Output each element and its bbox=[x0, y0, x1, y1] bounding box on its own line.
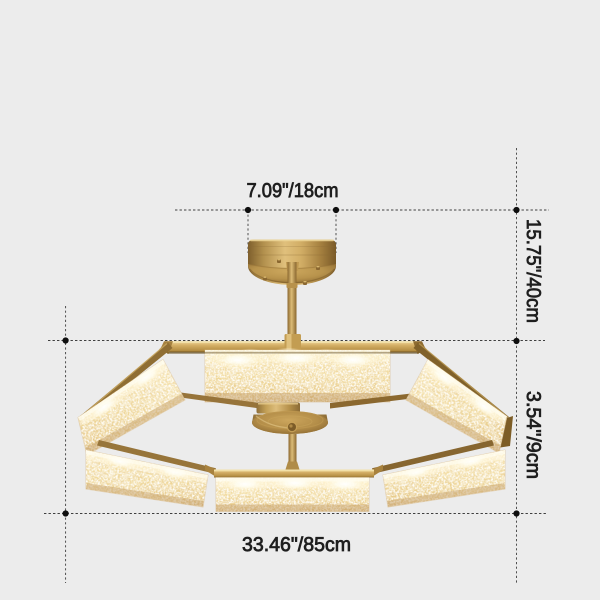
svg-text:15.75"/40cm: 15.75"/40cm bbox=[522, 219, 544, 323]
svg-text:33.46"/85cm: 33.46"/85cm bbox=[242, 534, 351, 556]
svg-text:3.54"/9cm: 3.54"/9cm bbox=[522, 391, 544, 479]
svg-text:7.09"/18cm: 7.09"/18cm bbox=[247, 180, 339, 202]
